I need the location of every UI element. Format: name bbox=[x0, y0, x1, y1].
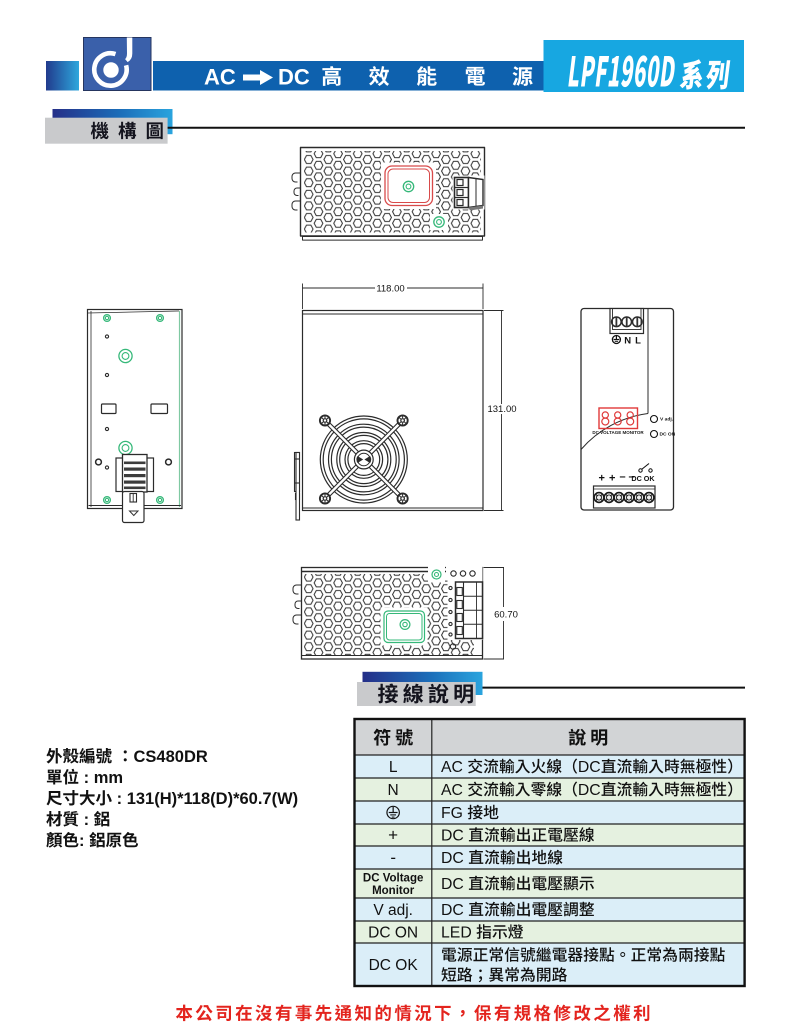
svg-text:V adj.: V adj. bbox=[373, 902, 413, 919]
svg-text:DC ON: DC ON bbox=[368, 925, 418, 942]
svg-text:CS480DR: CS480DR bbox=[134, 748, 208, 766]
svg-text:mm: mm bbox=[94, 769, 123, 787]
svg-text:+: + bbox=[599, 473, 605, 485]
svg-text::: : bbox=[79, 811, 94, 829]
svg-text:N: N bbox=[388, 782, 399, 799]
svg-text:FG: FG bbox=[441, 805, 467, 822]
svg-text:L: L bbox=[635, 336, 641, 347]
svg-text:L: L bbox=[389, 759, 398, 776]
svg-text:LED: LED bbox=[441, 925, 476, 942]
svg-text:+: + bbox=[388, 826, 398, 845]
svg-text:DC OK: DC OK bbox=[369, 957, 419, 974]
svg-text:V adj.: V adj. bbox=[660, 417, 674, 423]
svg-text:DC: DC bbox=[441, 828, 468, 845]
svg-text:DC: DC bbox=[278, 65, 310, 90]
svg-text:DC VOLTAGE MONITOR: DC VOLTAGE MONITOR bbox=[592, 430, 644, 435]
svg-text:DC ON: DC ON bbox=[660, 432, 676, 438]
svg-text:118.00: 118.00 bbox=[376, 284, 404, 295]
svg-text::: : bbox=[79, 832, 89, 850]
svg-text:N: N bbox=[624, 336, 631, 347]
svg-text:DC: DC bbox=[441, 850, 468, 867]
svg-text:60.70: 60.70 bbox=[494, 610, 518, 621]
svg-text::: : bbox=[79, 769, 94, 787]
svg-text::: : bbox=[112, 790, 127, 808]
svg-text:AC: AC bbox=[441, 782, 467, 799]
svg-text:131.00: 131.00 bbox=[487, 404, 516, 415]
svg-text:–: – bbox=[620, 471, 626, 483]
svg-text:DC: DC bbox=[441, 902, 468, 919]
svg-text:–: – bbox=[629, 471, 635, 483]
svg-text:AC: AC bbox=[441, 759, 467, 776]
svg-text:DC: DC bbox=[578, 759, 601, 776]
svg-text:DC: DC bbox=[441, 876, 468, 893]
svg-text:DC OK: DC OK bbox=[631, 474, 655, 483]
svg-text:AC: AC bbox=[204, 65, 236, 90]
svg-text:Monitor: Monitor bbox=[372, 885, 415, 897]
svg-text:DC Voltage: DC Voltage bbox=[363, 873, 424, 885]
svg-text:131(H)*118(D)*60.7(W): 131(H)*118(D)*60.7(W) bbox=[127, 790, 298, 808]
svg-text:DC: DC bbox=[578, 782, 601, 799]
svg-text:-: - bbox=[390, 848, 396, 867]
svg-text:+: + bbox=[609, 473, 615, 485]
